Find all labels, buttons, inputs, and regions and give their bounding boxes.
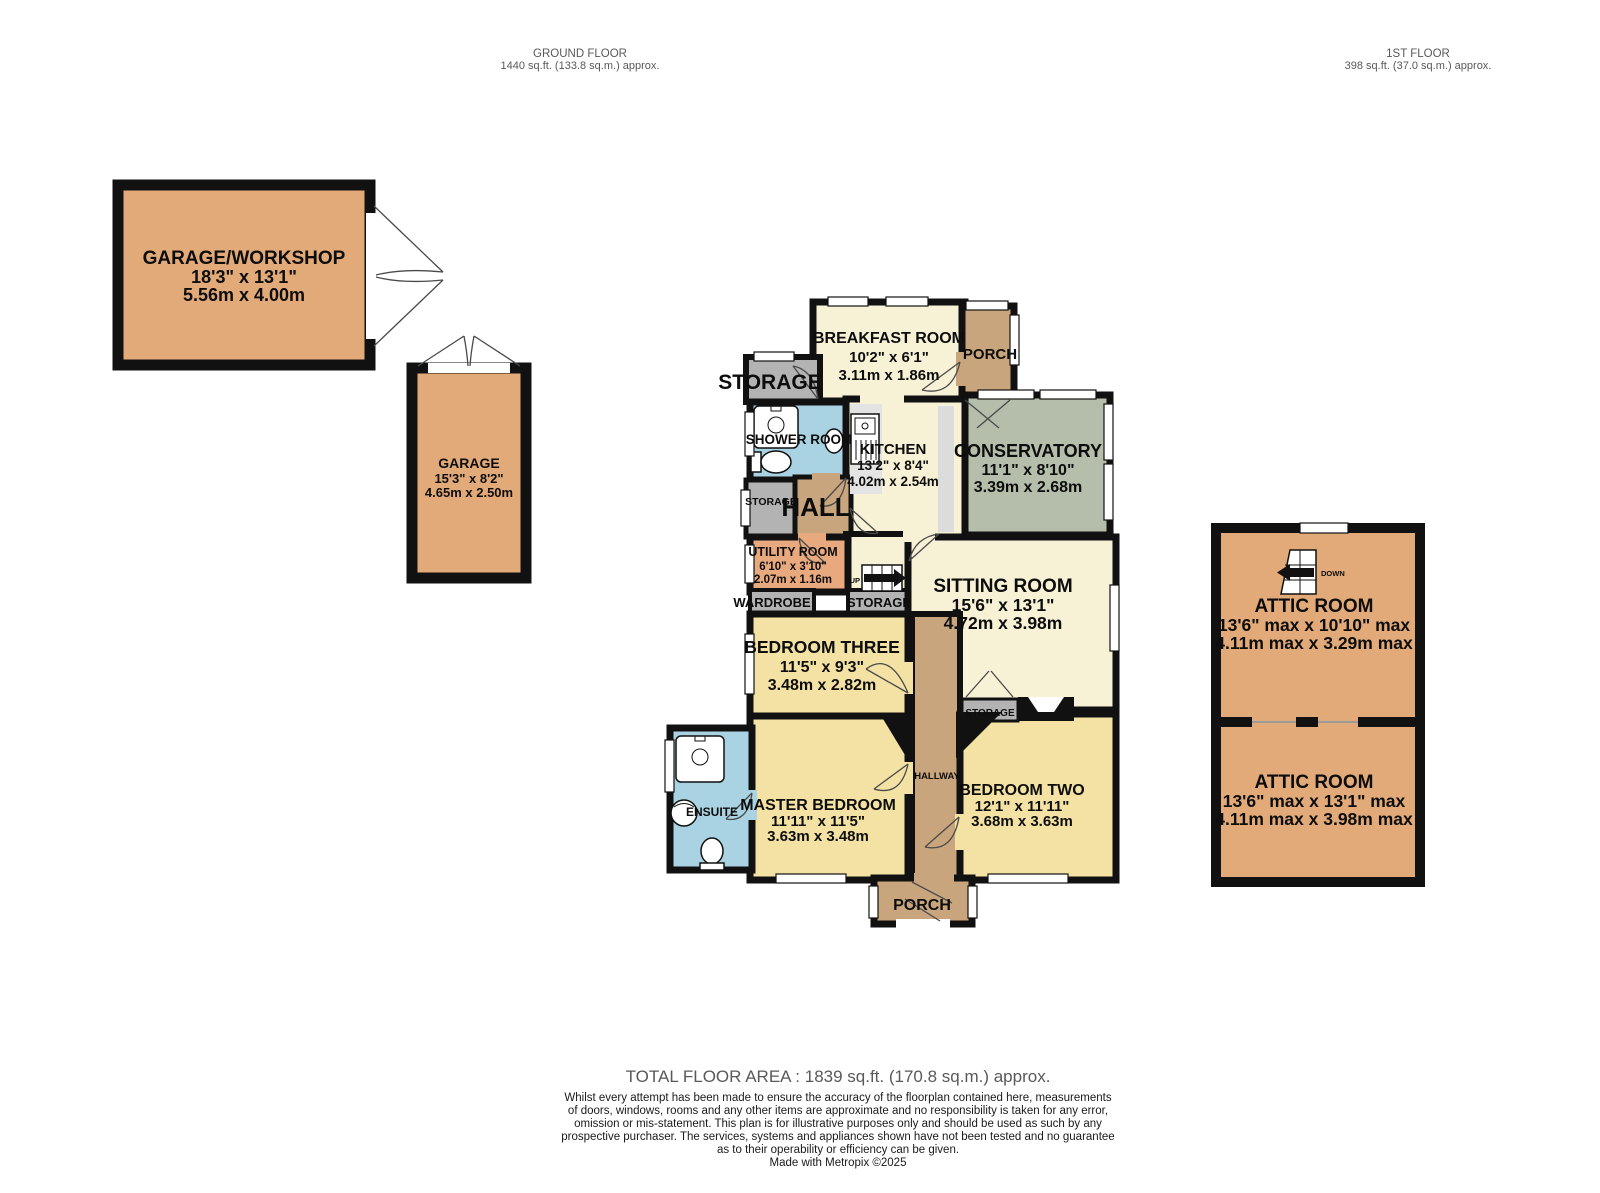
- disclaimer-line: Whilst every attempt has been made to en…: [564, 1092, 1111, 1104]
- toilet-icon: [751, 451, 791, 473]
- hallway-label: HALLWAY: [914, 771, 960, 782]
- breakfast-room-name: BREAKFAST ROOM: [813, 330, 965, 347]
- door-arc: [464, 336, 468, 366]
- window-marker: [968, 886, 977, 918]
- hallway-floor: [912, 614, 960, 882]
- storage-sit-label: STORAGE: [965, 708, 1015, 719]
- room-garage: GARAGE 15'3" x 8'2" 4.65m x 2.50m: [412, 336, 526, 578]
- room-garage-workshop: GARAGE/WORKSHOP 18'3" x 13'1" 5.56m x 4.…: [118, 185, 443, 365]
- main-house: UP: [665, 297, 1119, 929]
- bedroom-three-imperial: 11'5" x 9'3": [780, 659, 864, 676]
- breakfast-room-imperial: 10'2" x 6'1": [849, 349, 929, 366]
- wardrobe-label: WARDROBE: [733, 595, 811, 610]
- master-bedroom-name: MASTER BEDROOM: [740, 797, 896, 814]
- door-opening: [914, 873, 954, 884]
- window-marker: [828, 297, 868, 306]
- breakfast-room-metric: 3.11m x 1.86m: [839, 367, 940, 384]
- door-arc: [376, 277, 443, 281]
- door-leaf: [474, 336, 520, 366]
- attic-room-one-metric: 4.11m max x 3.29m max: [1215, 633, 1413, 653]
- stairs-up-icon: [862, 565, 906, 591]
- ground-floor-title: GROUND FLOOR: [533, 48, 627, 60]
- ground-floor-area: 1440 sq.ft. (133.8 sq.m.) approx.: [501, 60, 660, 72]
- kitchen-imperial: 13'2" x 8'4": [857, 458, 929, 473]
- attic-divider-wall: [1296, 717, 1318, 727]
- garage-imperial: 15'3" x 8'2": [434, 471, 503, 486]
- conservatory-name: CONSERVATORY: [954, 441, 1102, 461]
- window-marker: [978, 390, 1034, 399]
- disclaimer-line: as to their operability or efficiency ca…: [717, 1144, 959, 1156]
- door-arc: [376, 271, 443, 275]
- attic-room-two-imperial: 13'6" max x 13'1" max: [1223, 791, 1406, 811]
- door-opening: [812, 473, 840, 483]
- shower-room-label: SHOWER ROOM: [746, 432, 853, 447]
- metropix-credit: Made with Metropix ©2025: [770, 1157, 907, 1169]
- bedroom-two-metric: 3.68m x 3.63m: [971, 813, 1073, 830]
- attic-room-one-imperial: 13'6" max x 10'10" max: [1218, 615, 1411, 635]
- floorplan-svg: GROUND FLOOR 1440 sq.ft. (133.8 sq.m.) a…: [0, 0, 1600, 1193]
- header-ground-floor: GROUND FLOOR 1440 sq.ft. (133.8 sq.m.) a…: [501, 48, 660, 72]
- bedroom-three-metric: 3.48m x 2.82m: [768, 677, 877, 694]
- window-marker: [1300, 523, 1348, 533]
- attic-room-two-metric: 4.11m max x 3.98m max: [1215, 809, 1413, 829]
- window-marker: [665, 740, 674, 792]
- hall-label: HALL: [781, 492, 850, 522]
- window-marker: [754, 352, 794, 361]
- sitting-room-metric: 4.72m x 3.98m: [944, 613, 1063, 633]
- conservatory-metric: 3.39m x 2.68m: [974, 479, 1083, 496]
- ensuite-label: ENSUITE: [686, 805, 738, 819]
- attic-divider-wall: [1216, 717, 1252, 727]
- total-floor-area: TOTAL FLOOR AREA : 1839 sq.ft. (170.8 sq…: [626, 1067, 1051, 1086]
- door-opening: [902, 662, 913, 694]
- storage-mid-label: STORAGE: [847, 595, 911, 610]
- kitchen-name: KITCHEN: [860, 441, 927, 458]
- door-leaf: [374, 206, 443, 272]
- door-opening: [366, 213, 377, 339]
- garage-metric: 4.65m x 2.50m: [425, 485, 513, 500]
- stairs-up-label: UP: [850, 576, 860, 585]
- window-marker: [1040, 390, 1096, 399]
- kitchen-counter: [938, 406, 954, 532]
- door-leaf: [374, 280, 443, 346]
- storage-tl-label: STORAGE: [718, 371, 821, 394]
- disclaimer-line: of doors, windows, rooms and any other i…: [568, 1105, 1108, 1117]
- header-first-floor: 1ST FLOOR 398 sq.ft. (37.0 sq.m.) approx…: [1345, 48, 1492, 72]
- window-marker: [1110, 585, 1119, 651]
- first-floor-title: 1ST FLOOR: [1386, 48, 1450, 60]
- sitting-room-name: SITTING ROOM: [933, 576, 1072, 597]
- ensuite-shower-tray-icon: [676, 736, 724, 782]
- window-marker: [776, 874, 846, 883]
- porch-bottom-label: PORCH: [893, 897, 951, 914]
- sitting-room-imperial: 15'6" x 13'1": [952, 595, 1055, 615]
- door-arc: [470, 336, 474, 366]
- bedroom-two-name: BEDROOM TWO: [959, 782, 1084, 799]
- attic-room-one-name: ATTIC ROOM: [1255, 596, 1374, 617]
- attic-room-two-name: ATTIC ROOM: [1255, 772, 1374, 793]
- floorplan-canvas: GROUND FLOOR 1440 sq.ft. (133.8 sq.m.) a…: [0, 0, 1600, 1193]
- window-marker: [1104, 464, 1113, 520]
- porch-top-label: PORCH: [963, 346, 1017, 363]
- window-marker: [966, 301, 1008, 310]
- bedroom-three-name: BEDROOM THREE: [744, 637, 900, 657]
- attic-divider-wall: [1358, 717, 1420, 727]
- window-marker: [869, 886, 878, 918]
- window-marker: [886, 297, 928, 306]
- stairs-down-label: DOWN: [1321, 569, 1345, 578]
- first-floor-area: 398 sq.ft. (37.0 sq.m.) approx.: [1345, 60, 1492, 72]
- door-opening: [896, 919, 950, 929]
- window-marker: [1104, 404, 1113, 460]
- disclaimer-line: prospective purchaser. The services, sys…: [561, 1131, 1114, 1143]
- kitchen-metric: 4.02m x 2.54m: [847, 474, 939, 489]
- utility-room-name: UTILITY ROOM: [748, 545, 837, 559]
- ensuite-toilet-icon: [700, 838, 724, 870]
- conservatory-imperial: 11'1" x 8'10": [981, 462, 1074, 479]
- utility-room-imperial: 6'10" x 3'10": [759, 561, 827, 573]
- footer: TOTAL FLOOR AREA : 1839 sq.ft. (170.8 sq…: [561, 1067, 1114, 1169]
- master-bedroom-metric: 3.63m x 3.48m: [767, 828, 869, 845]
- garage-name: GARAGE: [438, 455, 499, 471]
- window-marker: [988, 874, 1068, 883]
- attic-building: DOWN ATTIC ROOM 13'6" max x 10'10" max 4…: [1215, 523, 1420, 882]
- utility-room-metric: 2.07m x 1.16m: [754, 574, 832, 586]
- garage-workshop-imperial: 18'3" x 13'1": [191, 267, 297, 287]
- door-leaf: [418, 336, 464, 366]
- disclaimer-line: omission or mis-statement. This plan is …: [574, 1118, 1102, 1130]
- garage-workshop-metric: 5.56m x 4.00m: [183, 285, 305, 305]
- door-opening: [860, 394, 904, 404]
- garage-workshop-name: GARAGE/WORKSHOP: [143, 248, 346, 269]
- door-opening: [428, 363, 510, 373]
